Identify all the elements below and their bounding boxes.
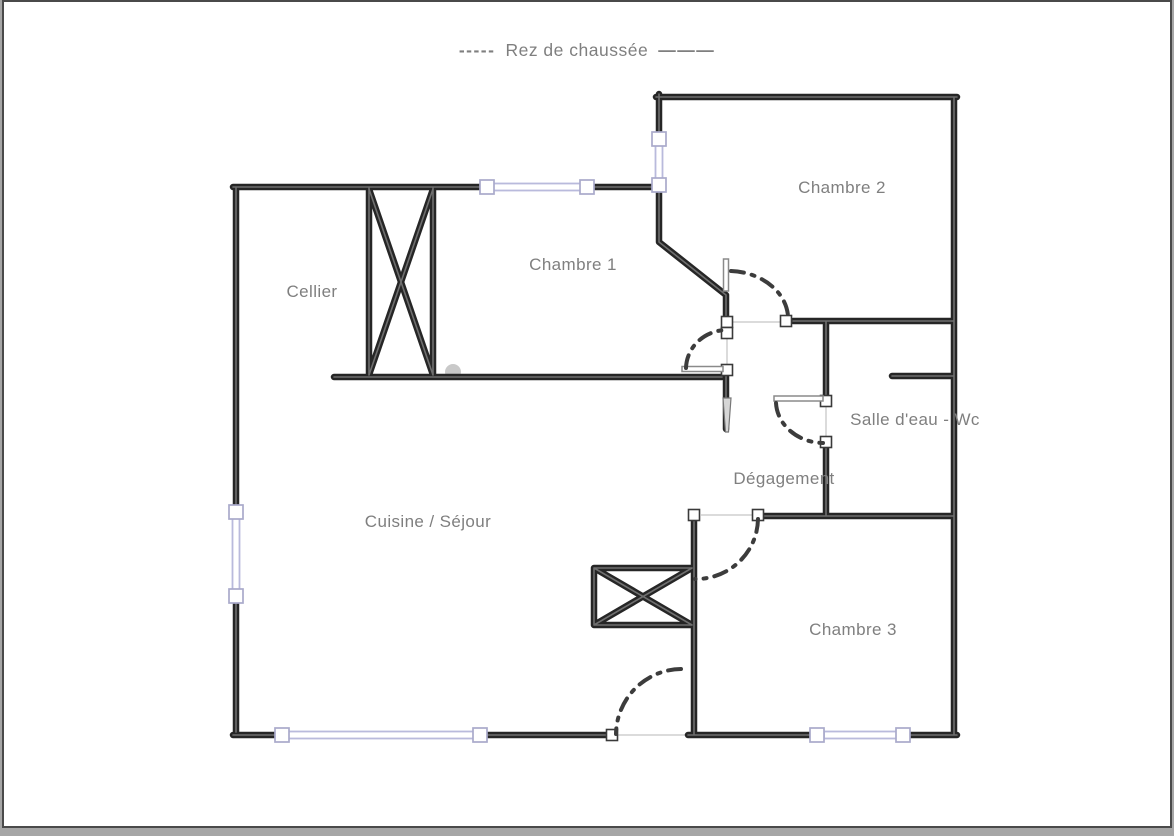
room-label-chambre-1: Chambre 1 [529, 255, 617, 275]
door-arc-chambre3 [695, 519, 758, 579]
room-label-chambre-2: Chambre 2 [798, 178, 886, 198]
door-leaves [682, 259, 823, 432]
window-bottom-chambre3 [824, 732, 897, 739]
window-left-cuisine [233, 518, 240, 592]
door-swing-arcs [616, 271, 823, 734]
door-leaf-salle-deau [774, 396, 823, 401]
room-label-chambre-3: Chambre 3 [809, 620, 897, 640]
windows [229, 132, 910, 742]
floorplan-drawing [4, 2, 1174, 836]
door-arc-entree [616, 669, 681, 734]
room-label-salle-deau-wc: Salle d'eau - Wc [850, 410, 980, 430]
window-left-chambre2 [656, 145, 663, 180]
room-label-degagement: Dégagement [733, 469, 834, 489]
window-top-chambre1 [492, 184, 583, 191]
door-arc-salle-deau [776, 403, 823, 443]
plan-page: ----- Rez de chaussée ——— [2, 0, 1172, 828]
room-label-cuisine-sejour: Cuisine / Séjour [365, 512, 491, 532]
room-label-cellier: Cellier [287, 282, 338, 302]
window-bottom-cuisine [288, 732, 474, 739]
floorplan-screenshot: { "page": { "title_prefix": "-----", "ti… [0, 0, 1174, 834]
door-leaf-corridor [682, 367, 723, 372]
door-arc-chambre2 [731, 271, 788, 316]
door-leaf-chambre2 [724, 259, 729, 291]
door-openings [618, 322, 826, 735]
door-arc-corridor [686, 330, 726, 368]
